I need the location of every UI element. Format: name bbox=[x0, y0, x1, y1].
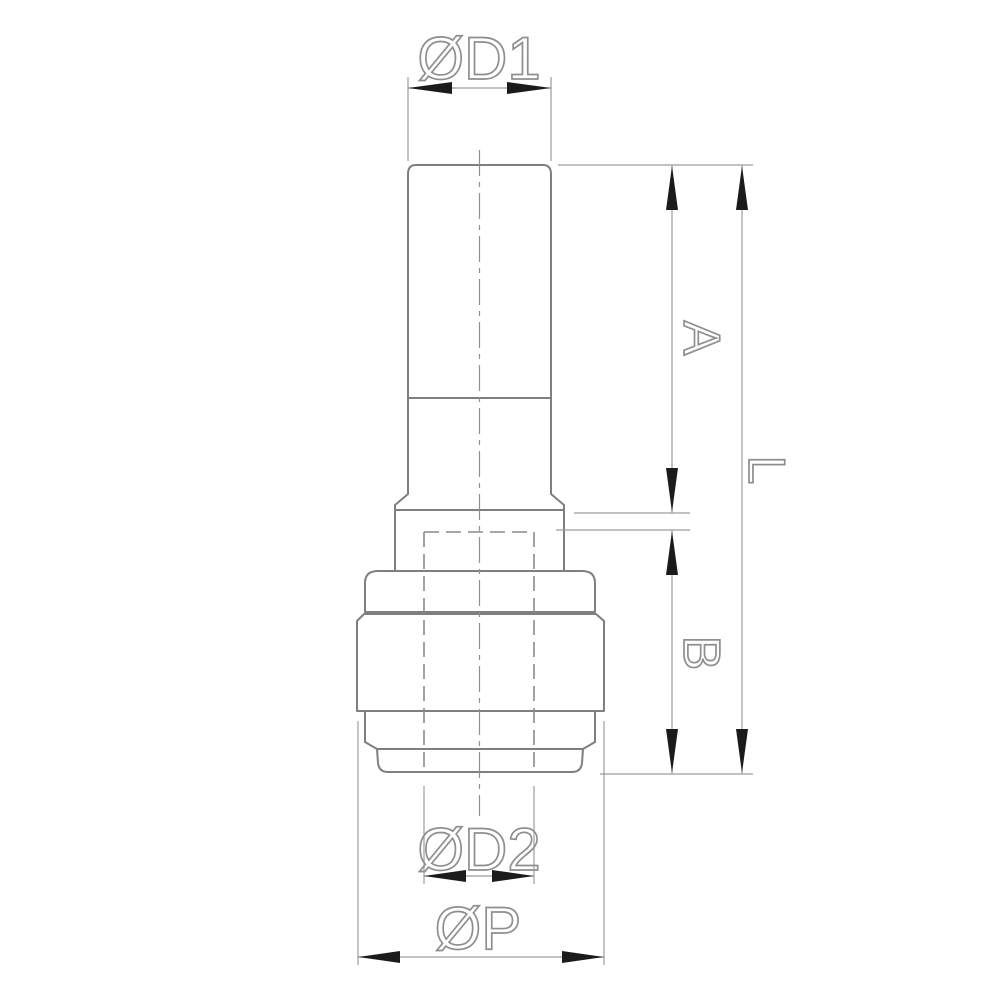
a-arrowhead-top bbox=[666, 166, 678, 210]
b-arrowhead-bottom bbox=[666, 729, 678, 773]
b-label: B bbox=[672, 636, 730, 671]
lower-band-left-outline bbox=[365, 711, 377, 749]
p-label: ØP bbox=[435, 895, 522, 962]
d2-label: ØD2 bbox=[417, 816, 540, 883]
main-body-outline bbox=[357, 614, 604, 711]
dimension-a: A bbox=[558, 165, 753, 513]
dimension-l: L bbox=[600, 165, 795, 774]
part-outline bbox=[357, 165, 604, 772]
dimension-d1: ØD1 bbox=[408, 25, 551, 161]
dimension-b: B bbox=[556, 530, 730, 774]
hidden-bore-lines bbox=[424, 532, 534, 772]
l-arrowhead-bottom bbox=[736, 729, 748, 773]
neck-left-outline bbox=[395, 398, 408, 510]
a-arrowhead-bottom bbox=[666, 468, 678, 512]
technical-drawing-canvas: ØD1 A B L bbox=[0, 0, 1000, 1000]
lower-band-right-outline bbox=[583, 711, 595, 749]
b-arrowhead-top bbox=[666, 531, 678, 575]
fitting-dimension-drawing: ØD1 A B L bbox=[0, 0, 1000, 1000]
d1-label: ØD1 bbox=[417, 25, 540, 92]
a-label: A bbox=[672, 321, 730, 356]
neck-right-outline bbox=[551, 398, 564, 510]
l-arrowhead-top bbox=[736, 166, 748, 210]
p-arrowhead-right bbox=[562, 951, 604, 963]
l-label: L bbox=[737, 456, 795, 485]
p-arrowhead-left bbox=[358, 951, 400, 963]
